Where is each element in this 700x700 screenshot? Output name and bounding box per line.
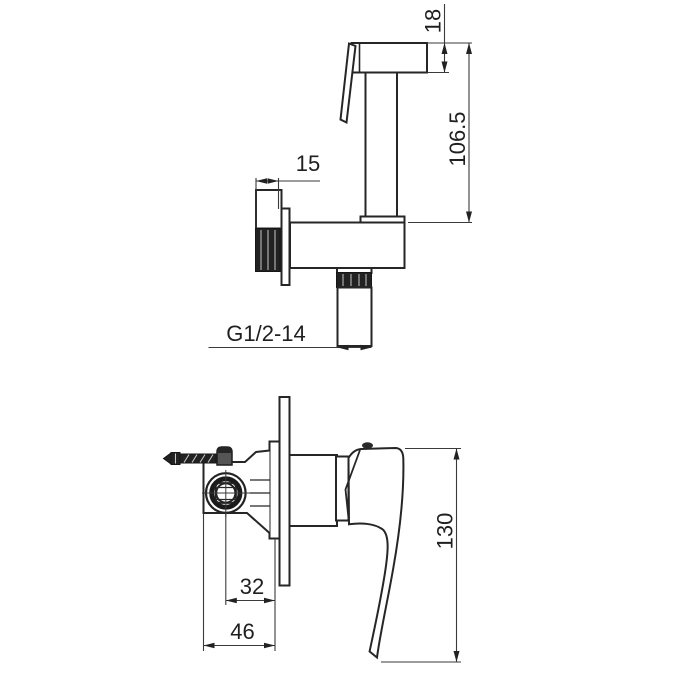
dim-label-15: 15: [296, 151, 320, 176]
mixer-mounting-collar: [270, 442, 280, 539]
mixer-body-cylinder: [290, 455, 338, 526]
outlet-pipe: [338, 288, 372, 347]
mixer-valve-view: 130 32 46: [164, 397, 462, 662]
sprayer-bracket-view: 18 106.5 15 G1/2-14: [209, 4, 473, 350]
mixer-wall-plate: [280, 397, 290, 586]
dim-head-height: 18: [421, 4, 473, 73]
sprayer-trigger: [341, 44, 356, 123]
mounting-screw: [164, 453, 217, 465]
dim-label-130: 130: [433, 513, 458, 550]
dim-label-g12-14: G1/2-14: [226, 321, 306, 346]
dim-label-46: 46: [230, 619, 254, 644]
drawing-svg: 18 106.5 15 G1/2-14: [0, 0, 700, 700]
sprayer-handle-tube: [366, 70, 398, 217]
mixer-lever-handle: [346, 442, 404, 657]
dim-label-32: 32: [240, 574, 264, 599]
dim-label-106-5: 106.5: [445, 111, 470, 166]
dim-label-18: 18: [421, 9, 446, 33]
valve-top-stub: [217, 447, 232, 465]
bracket-flange-plate: [282, 209, 290, 286]
technical-drawing-canvas: 18 106.5 15 G1/2-14: [0, 0, 700, 700]
inlet-nipple: [256, 190, 282, 229]
screw-tip: [164, 453, 172, 464]
handle-button: [362, 442, 373, 448]
sprayer-head: [352, 43, 428, 73]
wall-bracket-body: [290, 223, 405, 269]
